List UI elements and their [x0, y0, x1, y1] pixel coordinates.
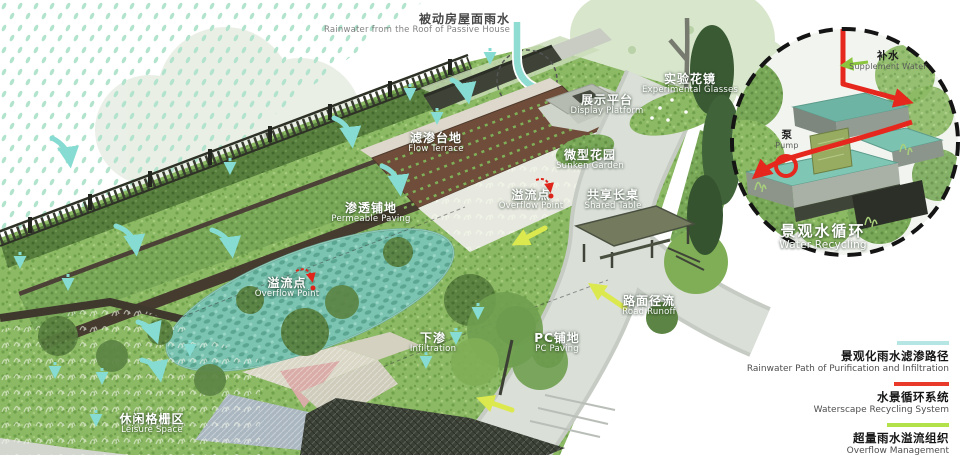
- landscape-illustration: .curveArrow{stroke:#86dcd2;stroke-width:…: [0, 0, 960, 455]
